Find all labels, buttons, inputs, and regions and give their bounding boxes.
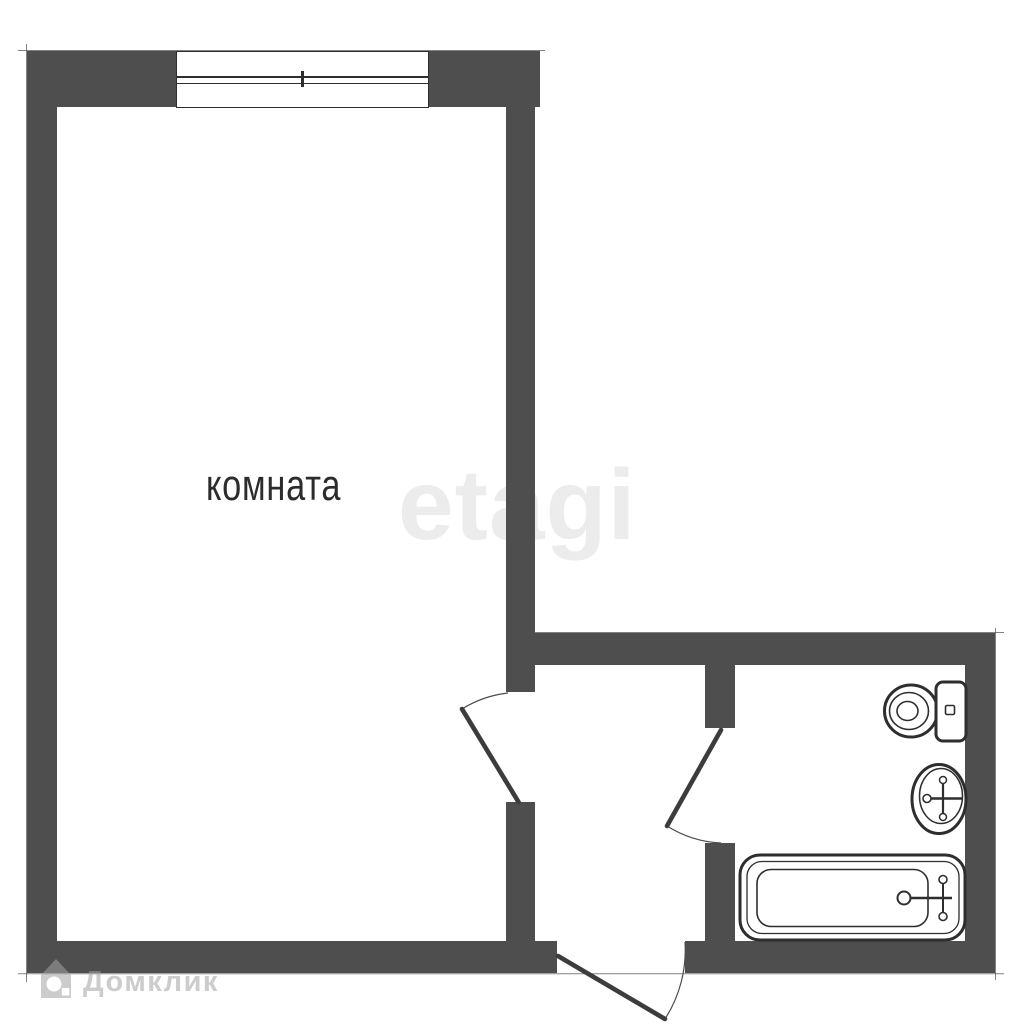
wall-top-left [27,51,176,107]
sink-icon [912,765,966,834]
wall-bath-partition-upper [705,665,735,728]
bathroom-door [667,730,721,843]
bathtub-icon [740,855,965,940]
floor-plan: etagi комната [0,0,1024,1024]
wall-room-right-upper [506,51,535,692]
wall-bottom-right [685,941,995,973]
entrance-door [558,942,685,1019]
domclick-watermark: Домклик [38,956,219,1002]
window-icon [176,51,429,108]
wall-extension-top [510,633,995,665]
house-logo-icon [38,956,74,1002]
room-door [462,693,519,802]
wall-bath-partition-lower [705,843,735,941]
window-center-tick [301,71,303,87]
room-label: комната [206,464,341,508]
toilet-icon [885,682,967,741]
domclick-watermark-text: Домклик [83,968,219,997]
wall-right [965,633,995,973]
wall-left [27,51,57,973]
